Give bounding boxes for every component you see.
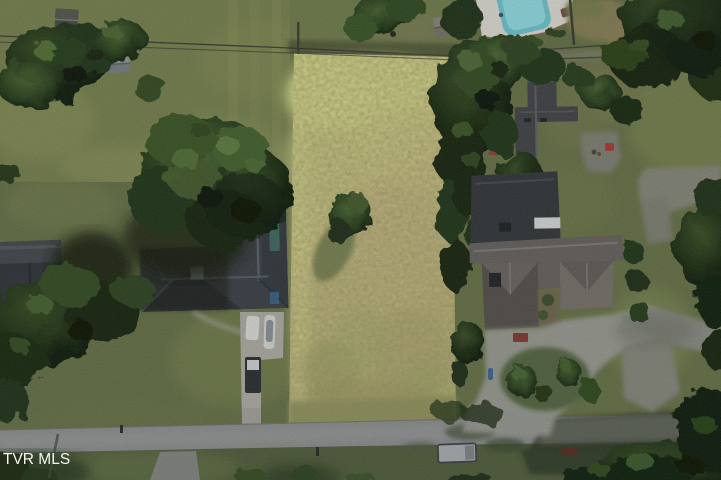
svg-text:TVR MLS: TVR MLS [3,451,70,468]
